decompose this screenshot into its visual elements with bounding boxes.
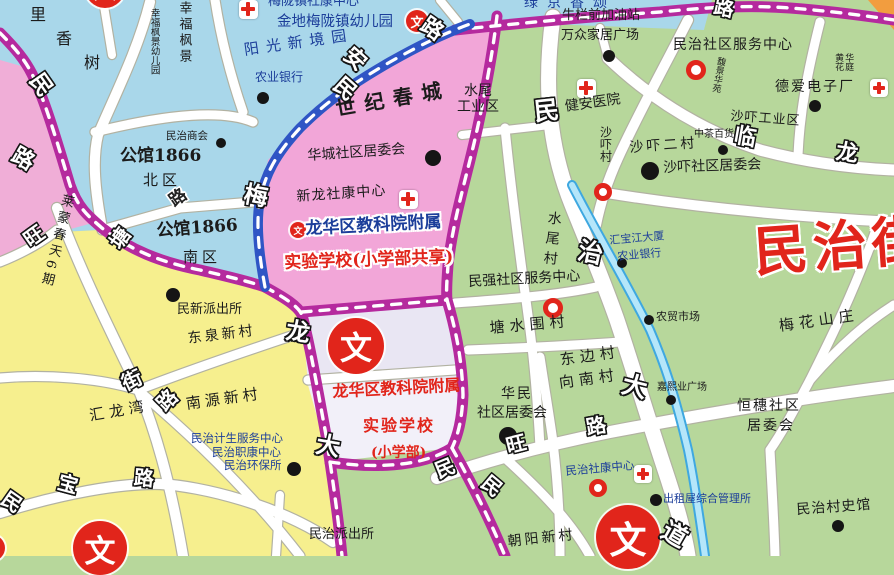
- map-canvas: 文文文文文文文 里香树幸福枫景幸福枫景幼儿园梅陇镇社康中心金地梅陇镇幼儿园阳光新…: [0, 0, 894, 556]
- map-graphics: [0, 0, 894, 556]
